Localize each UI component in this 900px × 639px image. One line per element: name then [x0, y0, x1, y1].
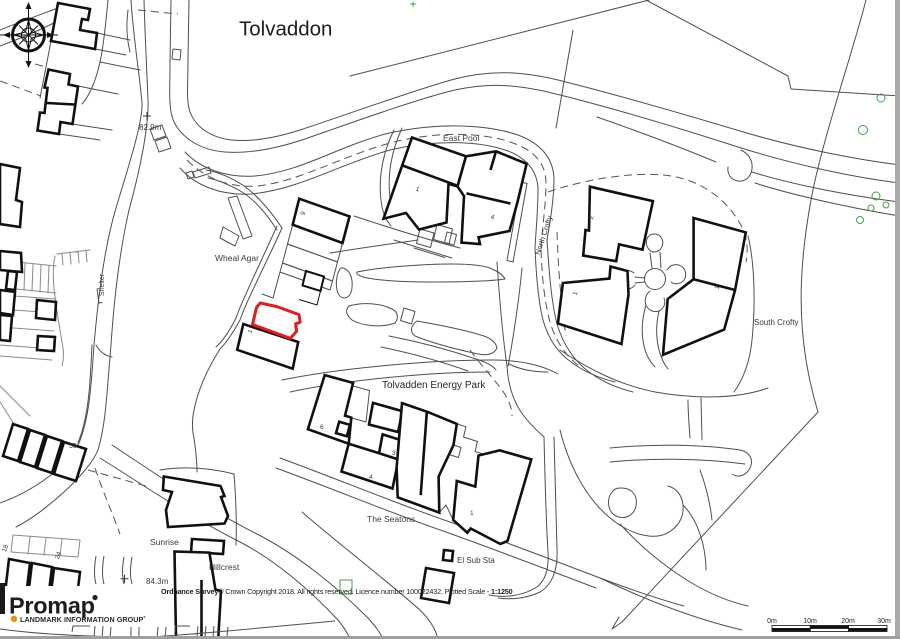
svg-text:Tolvadden Energy Park: Tolvadden Energy Park [382, 380, 486, 391]
svg-text:Shelter: Shelter [99, 273, 106, 296]
svg-text:84.3m: 84.3m [146, 577, 169, 586]
svg-text:4: 4 [369, 474, 373, 481]
svg-text:82.9m: 82.9m [139, 123, 162, 132]
svg-text:Ordnance Survey© Crown Copyrig: Ordnance Survey© Crown Copyright 2018. A… [161, 587, 513, 596]
svg-text:LANDMARK INFORMATION GROUP°: LANDMARK INFORMATION GROUP° [20, 615, 146, 624]
svg-text:Tolvaddon: Tolvaddon [239, 18, 332, 41]
svg-text:Wheal Agar: Wheal Agar [215, 253, 259, 263]
svg-text:30m: 30m [877, 618, 891, 625]
svg-text:3: 3 [392, 450, 396, 457]
svg-text:Hillcrest: Hillcrest [209, 562, 240, 572]
svg-text:East Pool: East Pool [443, 133, 479, 143]
svg-text:6: 6 [320, 424, 324, 431]
svg-text:The Seatons: The Seatons [367, 514, 415, 524]
svg-text:El Sub Sta: El Sub Sta [457, 556, 495, 565]
svg-text:0m: 0m [767, 618, 777, 625]
svg-text:Sunrise: Sunrise [150, 537, 179, 547]
svg-text:South Crofty: South Crofty [754, 318, 798, 327]
svg-text:20m: 20m [841, 618, 855, 625]
svg-text:55: 55 [69, 443, 77, 450]
svg-text:1: 1 [470, 510, 474, 517]
svg-text:10m: 10m [803, 618, 817, 625]
